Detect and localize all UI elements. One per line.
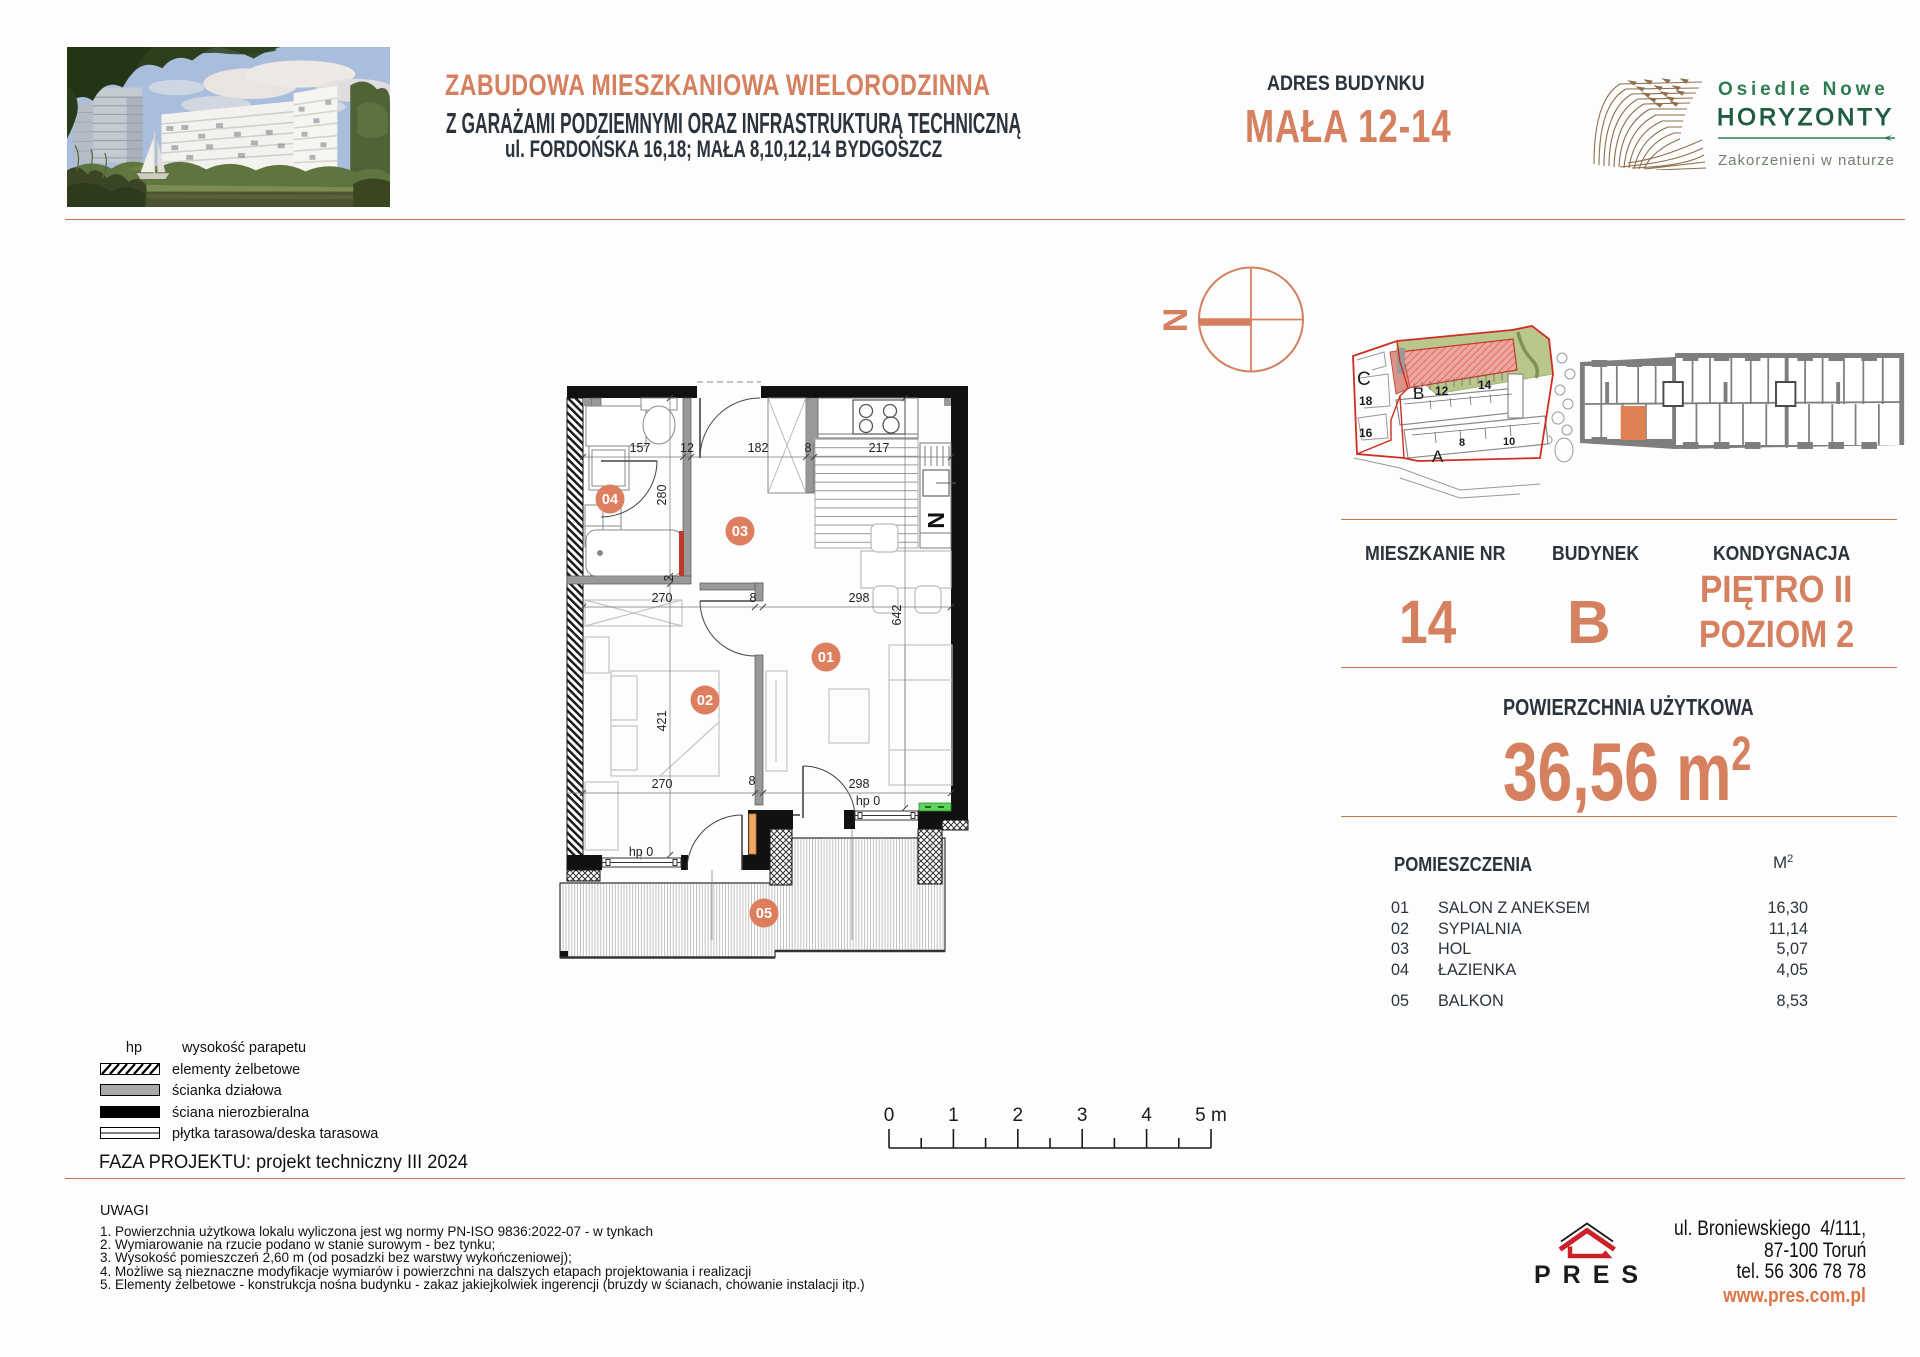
svg-text:10: 10 <box>1503 436 1515 448</box>
svg-text:182: 182 <box>748 441 769 455</box>
svg-text:hp 0: hp 0 <box>856 794 880 808</box>
svg-text:05: 05 <box>756 906 772 922</box>
svg-text:03: 03 <box>732 524 748 540</box>
svg-text:02: 02 <box>697 693 713 709</box>
svg-text:01: 01 <box>818 650 834 666</box>
svg-text:0: 0 <box>884 1105 895 1126</box>
svg-text:8: 8 <box>749 774 756 788</box>
svg-text:8: 8 <box>750 591 757 605</box>
svg-text:2: 2 <box>662 574 676 581</box>
svg-text:18: 18 <box>1359 394 1373 408</box>
svg-text:N: N <box>1157 308 1195 333</box>
svg-text:157: 157 <box>630 441 651 455</box>
svg-text:12: 12 <box>1435 384 1449 398</box>
svg-text:04: 04 <box>602 492 618 508</box>
svg-text:A: A <box>1432 447 1444 466</box>
svg-text:270: 270 <box>652 591 673 605</box>
svg-text:hp 0: hp 0 <box>629 845 653 859</box>
svg-text:12: 12 <box>680 441 694 455</box>
svg-text:B: B <box>1413 384 1424 403</box>
svg-text:Zakorzenieni w naturze: Zakorzenieni w naturze <box>1718 152 1894 169</box>
svg-text:N: N <box>923 512 949 529</box>
svg-text:270: 270 <box>652 777 673 791</box>
svg-text:298: 298 <box>849 777 870 791</box>
svg-text:642: 642 <box>890 605 904 626</box>
svg-text:HORYZONTY: HORYZONTY <box>1717 104 1893 131</box>
svg-text:5 m: 5 m <box>1195 1105 1227 1126</box>
svg-text:8: 8 <box>805 441 812 455</box>
svg-text:298: 298 <box>849 591 870 605</box>
svg-text:2: 2 <box>1013 1105 1024 1126</box>
svg-text:16: 16 <box>1359 426 1373 440</box>
svg-text:4: 4 <box>1141 1105 1152 1126</box>
svg-text:217: 217 <box>869 441 890 455</box>
svg-text:8: 8 <box>1459 437 1465 449</box>
svg-text:3: 3 <box>1077 1105 1088 1126</box>
svg-text:280: 280 <box>655 485 669 506</box>
svg-text:421: 421 <box>655 711 669 732</box>
svg-text:14: 14 <box>1478 378 1492 392</box>
svg-text:Osiedle Nowe: Osiedle Nowe <box>1718 79 1888 100</box>
svg-text:C: C <box>1357 369 1371 390</box>
svg-text:1: 1 <box>948 1105 959 1126</box>
